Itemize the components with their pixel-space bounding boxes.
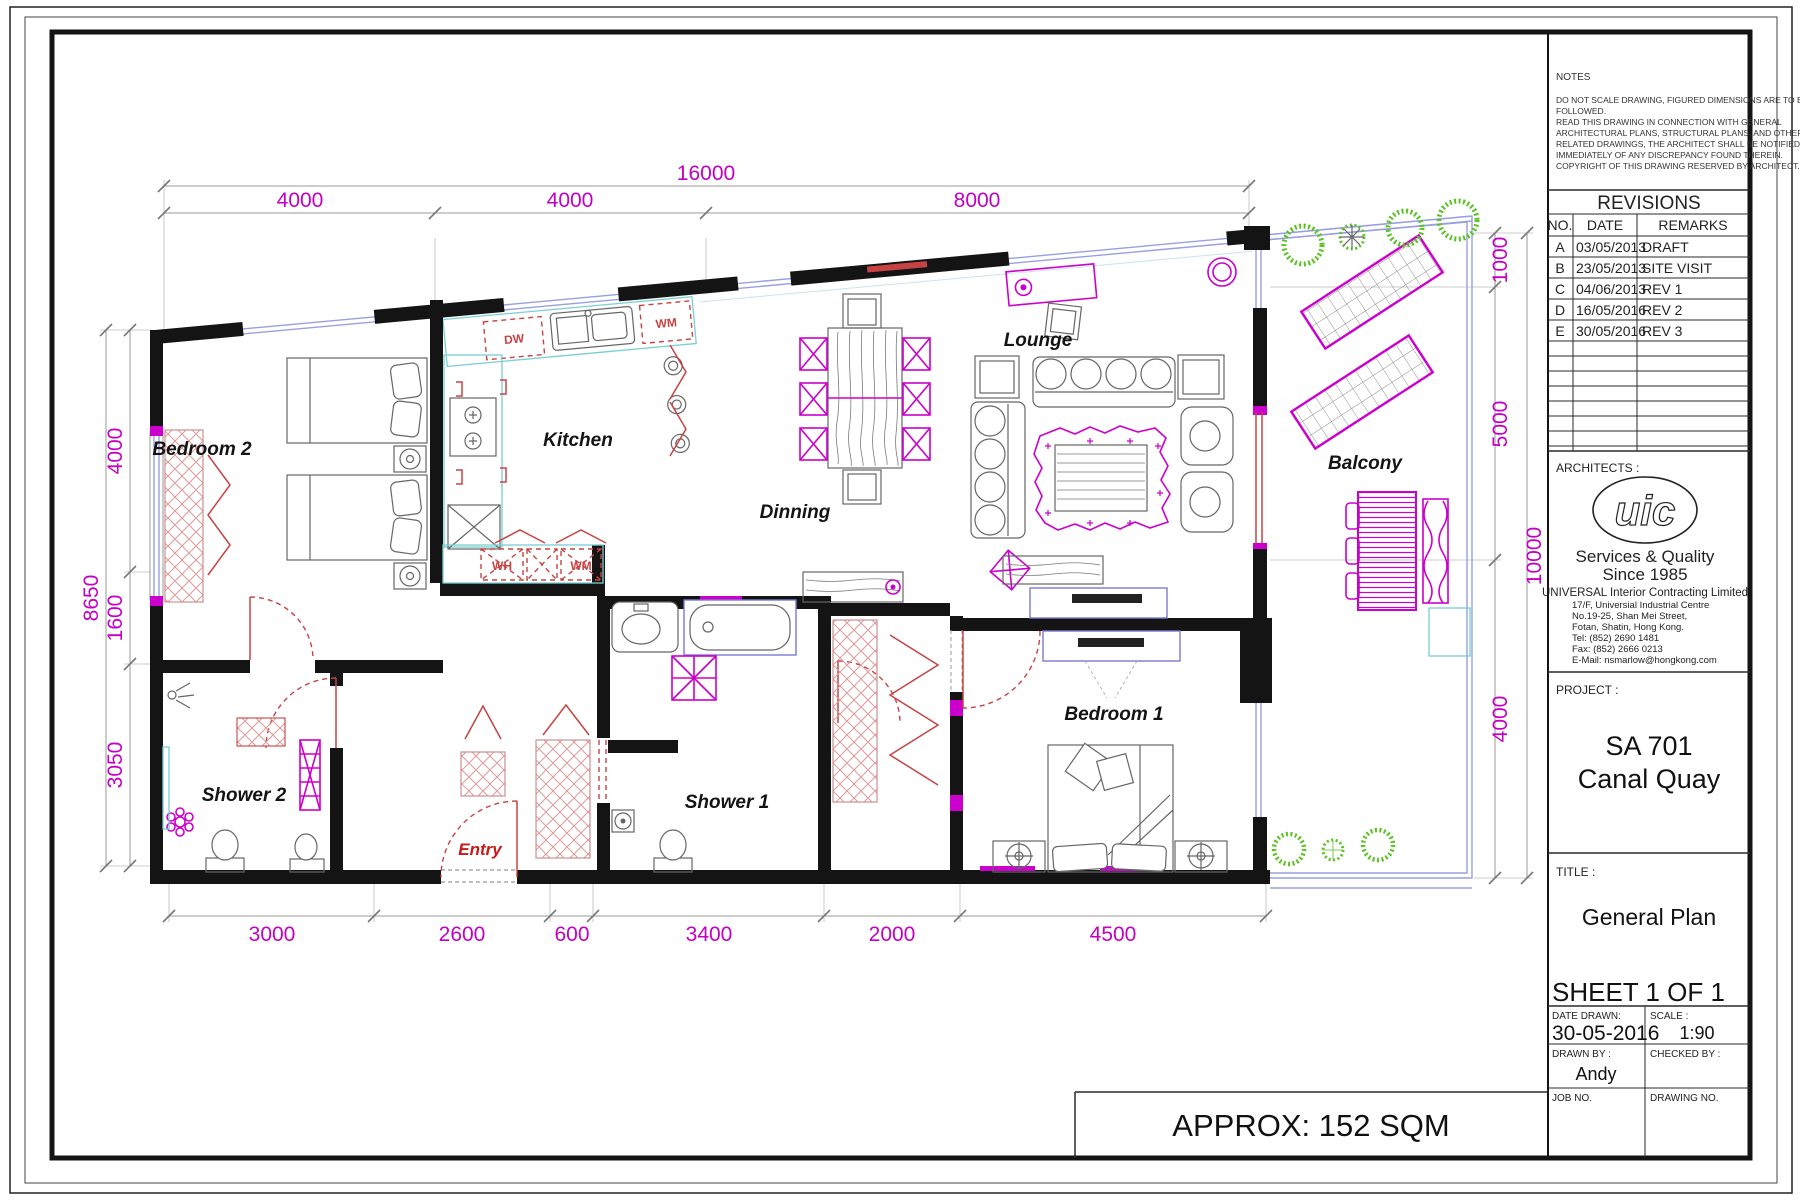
dim-top-total: 16000: [677, 162, 735, 185]
scale-label: SCALE :: [1650, 1011, 1688, 1022]
washing-machine-top-label: WM: [655, 315, 678, 331]
svg-text:DRAFT: DRAFT: [1642, 239, 1689, 255]
drawing-sheet: 16000 4000 4000 8000 4000 1600 3050 8650…: [0, 0, 1800, 1200]
dim-top-3: 8000: [954, 189, 1001, 212]
architects-tagline-1: Services & Quality: [1576, 547, 1715, 566]
notes-line-3: READ THIS DRAWING IN CONNECTION WITH GEN…: [1556, 117, 1782, 127]
label-bedroom1: Bedroom 1: [1064, 704, 1163, 725]
dim-right-3: 4000: [1489, 696, 1512, 743]
dim-bottom-5: 2000: [869, 923, 916, 946]
address-line-2: No.19-25, Shan Mei Street,: [1572, 611, 1687, 622]
label-balcony: Balcony: [1328, 453, 1403, 474]
svg-text:REV 3: REV 3: [1642, 323, 1683, 339]
label-shower1: Shower 1: [685, 792, 769, 813]
company-name: UNIVERSAL Interior Contracting Limited: [1542, 587, 1748, 599]
architects-tagline-2: Since 1985: [1602, 565, 1687, 584]
svg-text:16/05/2016: 16/05/2016: [1576, 302, 1646, 318]
drawn-by-value: Andy: [1575, 1064, 1616, 1084]
dim-left-2: 1600: [104, 595, 127, 642]
svg-text:E: E: [1555, 323, 1564, 339]
dim-right-2: 5000: [1489, 401, 1512, 448]
svg-text:30/05/2016: 30/05/2016: [1576, 323, 1646, 339]
address-line-5: Fax: (852) 2666 0213: [1572, 644, 1663, 655]
washing-machine-label: WM: [570, 559, 591, 573]
svg-text:REV 1: REV 1: [1642, 281, 1683, 297]
notes-line-2: FOLLOWED.: [1556, 106, 1606, 116]
approx-area-text: APPROX: 152 SQM: [1172, 1108, 1449, 1143]
svg-text:23/05/2013: 23/05/2013: [1576, 260, 1646, 276]
notes-line-1: DO NOT SCALE DRAWING, FIGURED DIMENSIONS…: [1556, 95, 1800, 105]
scale-value: 1:90: [1679, 1023, 1714, 1043]
svg-text:04/06/2013: 04/06/2013: [1576, 281, 1646, 297]
job-no-label: JOB NO.: [1552, 1093, 1592, 1104]
sheet-number: SHEET 1 OF 1: [1552, 977, 1725, 1007]
drawing-title: General Plan: [1582, 904, 1716, 930]
dim-left-3: 3050: [104, 742, 127, 789]
dim-top-2: 4000: [547, 189, 594, 212]
rev-row-b: B 23/05/2013 SITE VISIT: [1555, 260, 1712, 276]
label-dinning: Dinning: [760, 502, 831, 523]
notes-line-5: RELATED DRAWINGS, THE ARCHITECT SHALL BE…: [1556, 139, 1800, 149]
sheet-borders: [10, 7, 1792, 1193]
revisions-title: REVISIONS: [1597, 193, 1700, 214]
notes-line-4: ARCHITECTURAL PLANS, STRUCTURAL PLANS, A…: [1556, 128, 1800, 138]
architects-label: ARCHITECTS :: [1556, 461, 1639, 475]
svg-text:REV 2: REV 2: [1642, 302, 1683, 318]
date-drawn-value: 30-05-2016: [1552, 1022, 1659, 1045]
water-heater-label: WH: [492, 559, 512, 573]
notes-title: NOTES: [1556, 72, 1591, 83]
address-line-6: E-Mail: nsmarlow@hongkong.com: [1572, 655, 1717, 666]
label-entry: Entry: [458, 840, 503, 859]
dim-bottom-1: 3000: [249, 923, 296, 946]
dim-bottom-6: 4500: [1090, 923, 1137, 946]
uic-logo-text: uic: [1615, 487, 1676, 534]
notes-line-7: COPYRIGHT OF THIS DRAWING RESERVED BY AR…: [1556, 161, 1800, 171]
dim-bottom-4: 3400: [686, 923, 733, 946]
rev-header-no: NO.: [1548, 217, 1573, 233]
rev-row-a: A 03/05/2013 DRAFT: [1555, 239, 1689, 255]
dim-bottom-2: 2600: [439, 923, 486, 946]
label-bedroom2: Bedroom 2: [152, 439, 252, 460]
drawn-by-label: DRAWN BY :: [1552, 1049, 1611, 1060]
checked-by-label: CHECKED BY :: [1650, 1049, 1720, 1060]
drawing-no-label: DRAWING NO.: [1650, 1093, 1719, 1104]
notes-line-6: IMMEDIATELY OF ANY DISCREPANCY FOUND THE…: [1556, 150, 1783, 160]
address-line-1: 17/F, Universial Industrial Centre: [1572, 600, 1709, 611]
project-name-1: SA 701: [1605, 731, 1692, 761]
svg-text:A: A: [1555, 239, 1565, 255]
svg-text:SITE VISIT: SITE VISIT: [1642, 260, 1712, 276]
dishwasher-label: DW: [503, 331, 525, 347]
dim-bottom-3: 600: [554, 923, 589, 946]
label-lounge: Lounge: [1004, 330, 1073, 351]
dim-left-1: 4000: [104, 428, 127, 475]
dim-top-1: 4000: [277, 189, 324, 212]
dim-left-total: 8650: [80, 575, 103, 622]
svg-text:B: B: [1555, 260, 1564, 276]
title-label: TITLE :: [1556, 865, 1595, 879]
dim-right-total: 10000: [1523, 527, 1546, 585]
svg-text:C: C: [1555, 281, 1565, 297]
address-line-3: Fotan, Shatin, Hong Kong.: [1572, 622, 1684, 633]
address-line-4: Tel: (852) 2690 1481: [1572, 633, 1659, 644]
dim-right-1: 1000: [1489, 237, 1512, 284]
svg-text:03/05/2013: 03/05/2013: [1576, 239, 1646, 255]
date-drawn-label: DATE DRAWN:: [1552, 1011, 1621, 1022]
project-name-2: Canal Quay: [1578, 764, 1721, 794]
project-label: PROJECT :: [1556, 683, 1618, 697]
label-shower2: Shower 2: [202, 785, 287, 806]
rev-header-remarks: REMARKS: [1658, 217, 1727, 233]
svg-text:D: D: [1555, 302, 1565, 318]
rev-header-date: DATE: [1587, 217, 1623, 233]
label-kitchen: Kitchen: [543, 430, 613, 451]
